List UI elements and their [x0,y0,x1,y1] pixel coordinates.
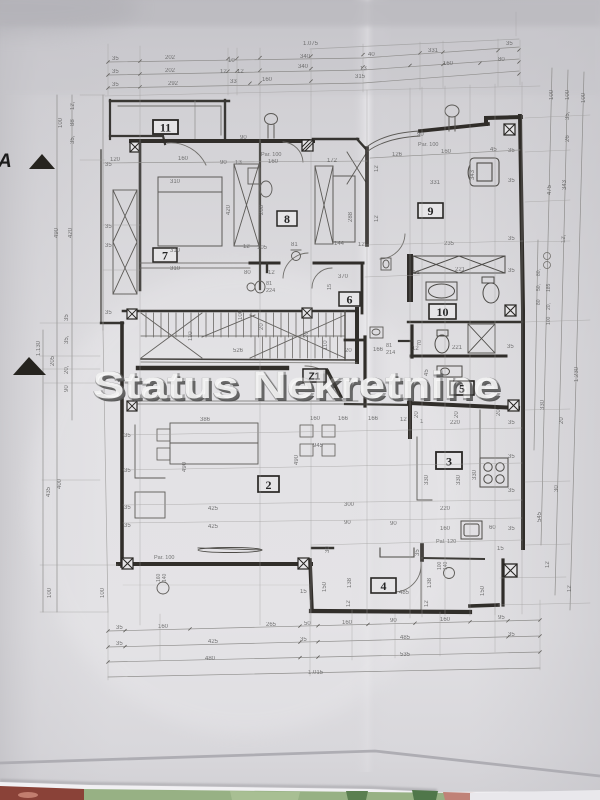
svg-text:425: 425 [208,639,219,645]
svg-text:81: 81 [386,343,392,349]
svg-text:88: 88 [70,119,76,126]
svg-text:80,: 80, [536,269,542,276]
svg-text:945: 945 [313,443,324,449]
svg-text:35: 35 [508,148,515,154]
svg-text:90: 90 [240,135,247,141]
svg-text:35: 35 [112,82,119,88]
svg-text:12: 12 [545,561,551,568]
svg-text:35,: 35, [565,111,571,120]
svg-text:331: 331 [430,180,441,186]
svg-text:2: 2 [266,478,272,492]
svg-text:12: 12 [374,165,380,172]
svg-text:12,: 12, [561,234,567,243]
svg-text:343: 343 [562,179,568,190]
svg-text:425: 425 [208,524,219,530]
svg-text:160: 160 [262,77,273,83]
svg-text:110: 110 [188,331,194,341]
svg-text:Par. 100: Par. 100 [261,152,282,158]
svg-text:120: 120 [110,157,121,163]
svg-text:26: 26 [565,135,571,142]
svg-text:13: 13 [360,66,367,72]
svg-text:172: 172 [327,158,338,164]
svg-text:224: 224 [266,288,275,294]
svg-text:4: 4 [381,579,387,593]
svg-text:214: 214 [386,350,395,356]
svg-text:12: 12 [374,215,380,222]
svg-text:90: 90 [390,521,397,527]
svg-text:330: 330 [540,399,546,410]
svg-text:480: 480 [205,656,216,662]
svg-text:1.075: 1.075 [303,41,319,47]
svg-text:160: 160 [178,156,189,162]
svg-text:12: 12 [220,69,227,75]
svg-text:221: 221 [455,267,466,273]
svg-text:6: 6 [347,293,353,307]
svg-text:490: 490 [182,461,188,472]
svg-text:475: 475 [547,184,553,195]
svg-text:Par. 100: Par. 100 [418,142,439,148]
svg-text:100: 100 [238,309,244,320]
svg-text:1.015: 1.015 [308,670,324,676]
svg-text:310: 310 [170,266,181,272]
svg-text:90: 90 [220,160,227,166]
svg-text:40: 40 [368,52,375,58]
svg-text:435: 435 [46,486,52,497]
svg-text:5: 5 [459,382,465,396]
svg-text:80: 80 [244,270,251,276]
svg-text:35: 35 [124,433,131,439]
svg-text:20: 20 [559,417,565,424]
svg-text:45: 45 [490,147,497,153]
svg-text:35: 35 [508,454,515,460]
svg-text:140: 140 [443,561,449,570]
svg-text:288: 288 [348,211,354,222]
svg-text:526: 526 [233,348,244,354]
svg-text:90: 90 [64,385,70,392]
svg-text:100: 100 [549,89,555,100]
svg-text:160: 160 [443,61,454,67]
svg-text:330: 330 [472,469,478,480]
svg-text:80: 80 [536,299,542,305]
svg-text:15: 15 [327,284,333,290]
svg-text:81: 81 [291,242,298,248]
svg-text:35: 35 [507,344,514,350]
svg-text:35: 35 [124,505,131,511]
svg-text:310: 310 [170,248,181,254]
svg-text:9: 9 [428,204,434,218]
svg-text:485: 485 [399,590,410,596]
svg-text:343: 343 [470,169,476,180]
svg-text:10: 10 [437,305,449,319]
svg-text:330: 330 [456,474,462,485]
svg-text:12: 12 [358,242,365,248]
svg-text:292: 292 [168,81,179,87]
svg-text:545: 545 [537,511,543,522]
svg-text:81: 81 [266,281,272,287]
svg-text:35: 35 [116,641,123,647]
svg-text:35: 35 [508,526,515,532]
svg-text:160: 160 [268,159,279,165]
svg-text:160: 160 [310,416,321,422]
svg-text:160: 160 [342,620,353,626]
svg-text:331: 331 [428,48,439,54]
svg-text:340: 340 [298,64,309,70]
svg-text:310: 310 [170,179,181,185]
svg-text:35: 35 [124,468,131,474]
svg-text:535: 535 [400,652,411,658]
svg-text:300: 300 [344,502,355,508]
svg-text:35,: 35, [64,335,70,344]
svg-text:370: 370 [338,274,349,280]
svg-text:100: 100 [546,316,552,325]
svg-text:20: 20 [345,348,352,354]
svg-text:150: 150 [322,581,328,592]
svg-text:126: 126 [392,152,403,158]
svg-text:15: 15 [497,546,504,552]
svg-text:100: 100 [581,92,587,103]
svg-text:105: 105 [257,245,268,251]
svg-text:12: 12 [567,585,573,592]
svg-text:235: 235 [444,241,455,247]
svg-text:35: 35 [508,632,515,638]
svg-text:90: 90 [417,132,424,138]
svg-text:A: A [0,151,12,172]
svg-text:425: 425 [208,506,219,512]
svg-text:420: 420 [226,204,232,215]
svg-text:35: 35 [415,549,421,556]
svg-text:15: 15 [300,589,307,595]
svg-text:20: 20 [454,411,460,418]
svg-text:35: 35 [508,488,515,494]
svg-text:35: 35 [112,56,119,62]
svg-text:202: 202 [165,55,176,61]
svg-text:35: 35 [508,420,515,426]
svg-text:11: 11 [160,121,171,135]
svg-text:50,: 50, [536,284,542,291]
svg-text:12: 12 [346,600,352,607]
svg-text:12: 12 [424,600,430,607]
svg-text:150: 150 [480,585,486,596]
svg-text:35: 35 [105,310,112,316]
svg-text:33: 33 [230,79,237,85]
svg-text:35: 35 [508,268,515,274]
svg-text:490: 490 [294,454,300,465]
svg-text:35: 35 [64,314,70,321]
svg-text:3: 3 [446,455,452,469]
svg-text:12: 12 [243,244,250,250]
svg-text:220: 220 [440,506,451,512]
svg-text:90: 90 [390,618,397,624]
svg-text:140: 140 [162,573,168,582]
svg-text:35: 35 [124,523,131,529]
svg-text:35: 35 [508,178,515,184]
svg-text:340: 340 [300,54,311,60]
svg-text:160: 160 [441,149,452,155]
svg-text:20,: 20, [546,303,552,310]
svg-text:10: 10 [228,58,235,64]
svg-text:80: 80 [498,57,505,63]
svg-text:386: 386 [200,417,211,423]
svg-text:12: 12 [268,270,275,276]
svg-text:35: 35 [116,625,123,631]
svg-text:7: 7 [162,249,168,263]
svg-text:35,: 35, [70,135,76,144]
svg-text:315: 315 [355,74,366,80]
svg-text:100: 100 [565,89,571,100]
svg-text:20: 20 [414,411,420,418]
svg-text:100: 100 [47,587,53,598]
svg-text:30: 30 [325,546,331,553]
svg-text:166: 166 [368,416,379,422]
svg-text:20,: 20, [64,365,70,374]
svg-text:1.230: 1.230 [574,366,580,382]
svg-text:160: 160 [158,624,169,630]
svg-text:205: 205 [50,355,56,366]
svg-text:1.130: 1.130 [36,340,42,356]
svg-text:30: 30 [554,485,560,492]
svg-text:12,: 12, [70,101,76,110]
svg-text:100: 100 [58,117,64,128]
svg-text:265: 265 [266,622,277,628]
svg-text:20: 20 [304,331,310,338]
svg-text:485: 485 [400,635,411,641]
svg-text:Par. 100: Par. 100 [154,555,175,561]
svg-text:160: 160 [440,526,451,532]
svg-text:221: 221 [452,345,463,351]
svg-text:100: 100 [100,587,106,598]
svg-text:420: 420 [68,227,74,238]
svg-text:35: 35 [105,243,112,249]
svg-text:35: 35 [112,69,119,75]
svg-text:202: 202 [165,68,176,74]
svg-text:Z1: Z1 [309,372,321,383]
svg-text:166: 166 [338,416,349,422]
svg-text:138: 138 [427,577,433,588]
svg-text:35: 35 [300,637,307,643]
svg-text:330: 330 [424,474,430,485]
svg-text:166: 166 [373,347,384,353]
svg-text:138: 138 [347,577,353,588]
svg-text:35: 35 [506,41,513,47]
svg-text:144: 144 [334,241,345,247]
svg-text:13: 13 [235,160,242,166]
svg-text:Status Nekretnine: Status Nekretnine [93,365,500,407]
svg-text:220: 220 [450,420,461,426]
svg-text:490: 490 [54,227,60,238]
svg-text:90: 90 [344,520,351,526]
svg-text:95: 95 [498,615,505,621]
svg-text:12: 12 [400,417,407,423]
svg-text:8: 8 [284,212,290,226]
svg-text:110: 110 [323,340,329,350]
svg-text:160: 160 [440,617,451,623]
svg-text:185: 185 [546,283,552,292]
